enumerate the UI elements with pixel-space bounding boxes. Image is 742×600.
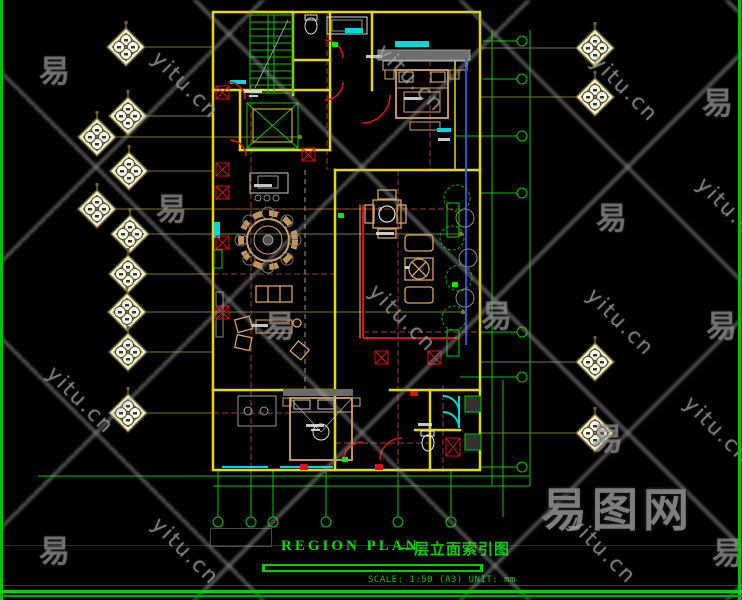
drawing-title-zh: 一层立面索引图 — [398, 538, 510, 559]
label-marks — [244, 55, 450, 431]
tv-cabinet — [214, 222, 223, 337]
elevation-index-symbol — [110, 145, 148, 190]
elevator — [247, 103, 298, 148]
scale-label: SCALE: 1:50 (A3) UNIT: mm — [368, 575, 516, 585]
elevation-index-symbol — [576, 22, 614, 67]
elevation-index-symbol — [107, 21, 145, 66]
centerline-layer — [213, 14, 480, 480]
elevation-index-symbol — [576, 71, 614, 116]
elevation-index-symbol — [78, 183, 116, 228]
elevation-symbols — [78, 21, 614, 452]
scale-bar — [262, 564, 483, 572]
bedroom-top-right — [378, 41, 470, 130]
elevation-index-symbol — [108, 286, 146, 331]
cad-drawing-canvas: REGION PLAN 一层立面索引图 SCALE: 1:50 (A3) UNI… — [0, 0, 742, 600]
elevation-index-symbol — [109, 90, 147, 135]
title-box-outline — [210, 528, 272, 547]
frame-border-left — [0, 0, 3, 600]
living-set — [365, 190, 433, 303]
bedroom-bottom — [238, 389, 360, 460]
dining-table — [235, 207, 301, 273]
red-partition — [363, 205, 460, 338]
wall-layer — [213, 12, 480, 470]
plants — [440, 185, 477, 356]
divider-line-bottom — [0, 585, 742, 586]
frame-border-right — [738, 0, 741, 600]
floor-plan-svg — [0, 0, 742, 600]
frame-border-bottom — [0, 590, 742, 593]
fixture-layer — [214, 15, 481, 470]
stairs — [250, 15, 293, 93]
elevation-index-symbol — [109, 326, 147, 371]
grid-lines — [38, 30, 530, 527]
elevation-index-symbol — [576, 407, 614, 452]
leader-lines — [114, 47, 578, 433]
elevation-index-symbol — [109, 387, 147, 432]
frame-border-bottom-2 — [0, 595, 742, 597]
elevation-index-symbol — [576, 336, 614, 381]
sofa-group — [235, 286, 310, 360]
elevation-index-symbol — [111, 208, 149, 253]
